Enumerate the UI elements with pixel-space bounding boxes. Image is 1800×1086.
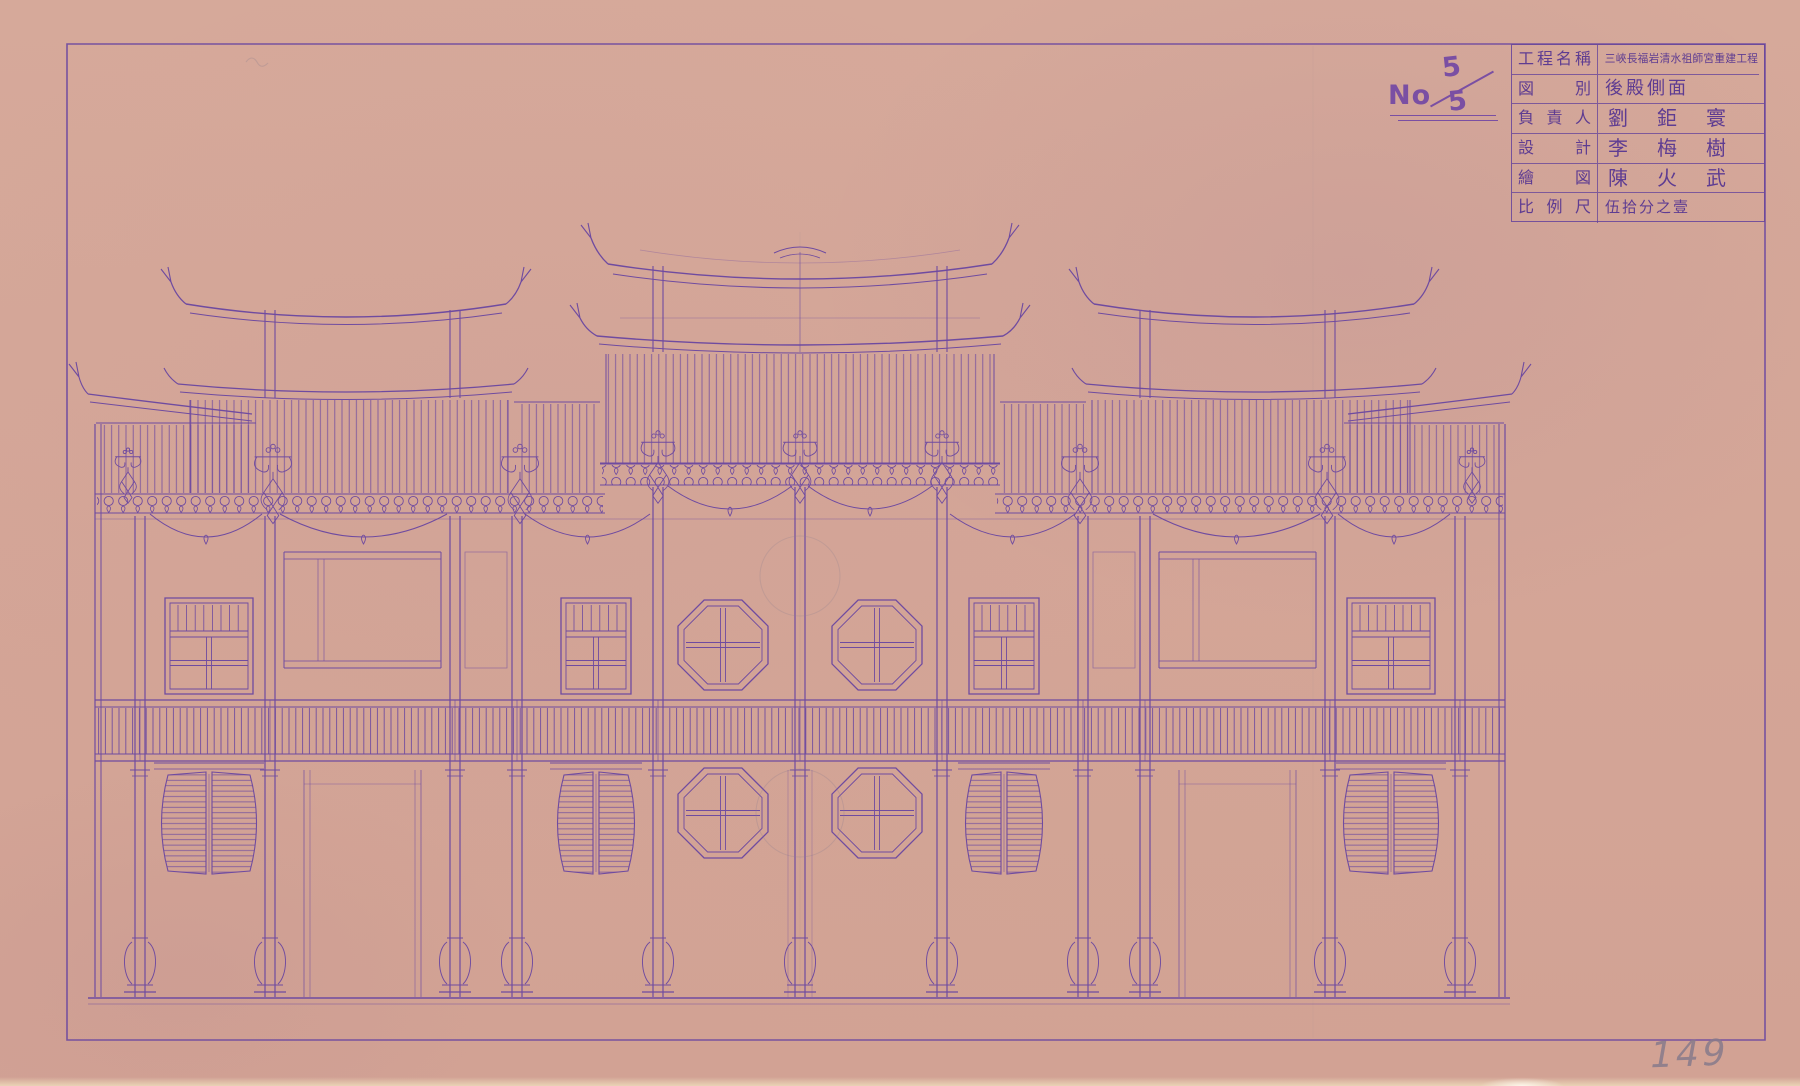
title-block-label-project: 工程名稱 xyxy=(1512,45,1598,75)
sheet-number-index: 5 xyxy=(1440,51,1462,84)
title-block-label-scale: 比例尺 xyxy=(1512,193,1598,223)
page-number: 149 xyxy=(1646,1033,1732,1077)
title-block-value-designer: 李梅樹 xyxy=(1598,134,1764,164)
balustrade xyxy=(95,700,1505,761)
title-block-value-project: 三峽長福岩清水祖師宮重建工程 xyxy=(1598,45,1759,75)
underline xyxy=(1398,120,1498,121)
sheet-number-label: No xyxy=(1388,80,1431,111)
paper-corner-highlight xyxy=(1462,1076,1582,1086)
title-block-value-scale: 伍拾分之壹 xyxy=(1598,193,1764,223)
title-block-label-designer: 設計 xyxy=(1512,134,1598,164)
title-block-value-drawing-type: 後殿側面 xyxy=(1598,75,1764,105)
lower-floor xyxy=(88,763,1510,1004)
sheet-number-block: No 5 5 xyxy=(1388,54,1504,126)
title-block-label-person-in-charge: 負責人 xyxy=(1512,104,1598,134)
sheet-number-total: 5 xyxy=(1446,85,1468,118)
underline xyxy=(1390,115,1496,116)
blueprint-sheet: { "sheet": { "no_label": "No", "sheet_in… xyxy=(0,0,1800,1086)
title-block-label-drawing-type: 図別 xyxy=(1512,75,1598,105)
title-block-value-draftsman: 陳火武 xyxy=(1598,164,1764,194)
title-block-label-draftsman: 繪図 xyxy=(1512,164,1598,194)
title-block-value-person-in-charge: 劉鉅寰 xyxy=(1598,104,1764,134)
roof-group xyxy=(69,223,1531,493)
title-block: 工程名稱 三峽長福岩清水祖師宮重建工程 図別 後殿側面 負責人 劉鉅寰 設計 李… xyxy=(1511,44,1765,222)
